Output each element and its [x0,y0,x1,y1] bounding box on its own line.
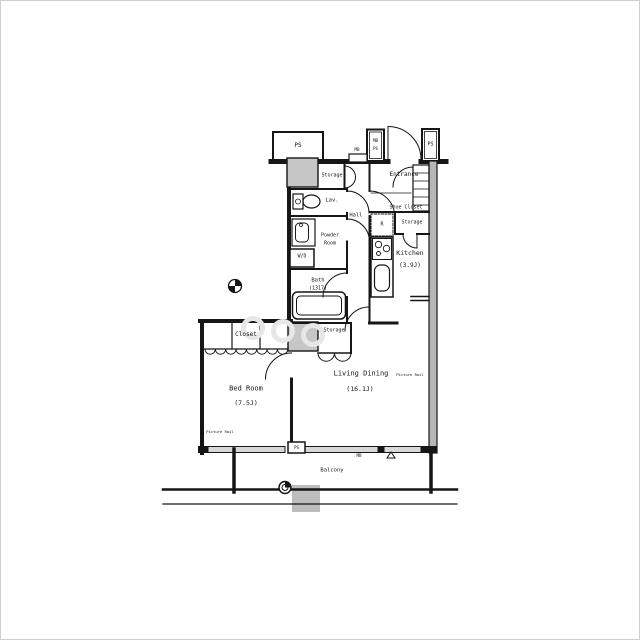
label-mb-top: MB [354,148,359,152]
lav-door-arc [347,191,369,213]
bedroom-door-arc [266,353,292,379]
label-balcony: Balcony [320,468,343,474]
label-kitchen-size: (3.9J) [399,263,421,269]
label-storage-lower: Storage [323,329,344,334]
label-washer-dryer: W/D [298,256,307,261]
label-refrigerator: R [380,223,383,228]
storage-top-bifold-arc [345,166,356,177]
living-window-right [384,447,421,453]
kitchen-counter [371,237,393,297]
label-bath-name: Bath [311,278,324,284]
closet-hanger-scallops [205,349,288,354]
watermark [301,323,325,347]
mb-meter-box [349,154,367,162]
floorplan-image: PS MB PS PS MB Storage Entrance Shoe Clo… [0,0,640,640]
label-mb-box-2: PS [373,147,378,151]
living-window-left [305,447,378,453]
entrance-door-arc [388,127,421,160]
faucet [300,224,303,227]
label-living-name: Living Dining [334,371,389,378]
label-picture-rail-bedroom: Picture Rail [206,430,233,434]
toilet-tank [293,194,303,209]
label-entrance: Entrance [390,172,419,178]
label-hall: Hall [349,213,362,219]
label-kitchen-name: Kitchen [396,250,423,257]
label-bedroom-size: (7.5J) [234,400,257,407]
label-mb-bottom: MB [356,454,361,458]
label-powder-1: Powder [321,234,339,239]
label-mb-box-1: MB [373,139,378,143]
hall-living-door-arc [345,307,369,331]
concrete-wall-right [429,161,437,453]
shaft-square-top [287,158,318,187]
label-ps-top-right: PS [427,143,433,148]
label-ps-top-left: PS [294,143,301,149]
label-shoe-closet: Shoe Closet [389,206,422,211]
label-lav: Lav. [325,198,338,204]
balcony-structure [163,449,457,512]
powder-door-arc [347,219,370,242]
label-ps-balcony: PS [294,445,299,449]
label-living-size: (16.1J) [346,386,373,393]
label-picture-rail-living: Picture Rail [396,373,423,377]
toilet-bowl [303,195,320,208]
label-closet: Closet [235,332,257,338]
label-storage-top: Storage [321,174,342,179]
entry-storage-door-arc [403,234,417,248]
floorplan-drawing [1,1,640,640]
label-powder-2: Room [324,242,336,247]
bedroom-window [208,447,285,453]
windows [208,442,421,453]
label-storage-entry: Storage [401,221,422,226]
section-marker-icon [229,280,242,293]
label-bath-size: (1317) [309,287,327,292]
watermark [271,319,295,343]
label-bedroom-name: Bed Room [229,386,263,393]
lower-storage-accordion [318,353,351,361]
